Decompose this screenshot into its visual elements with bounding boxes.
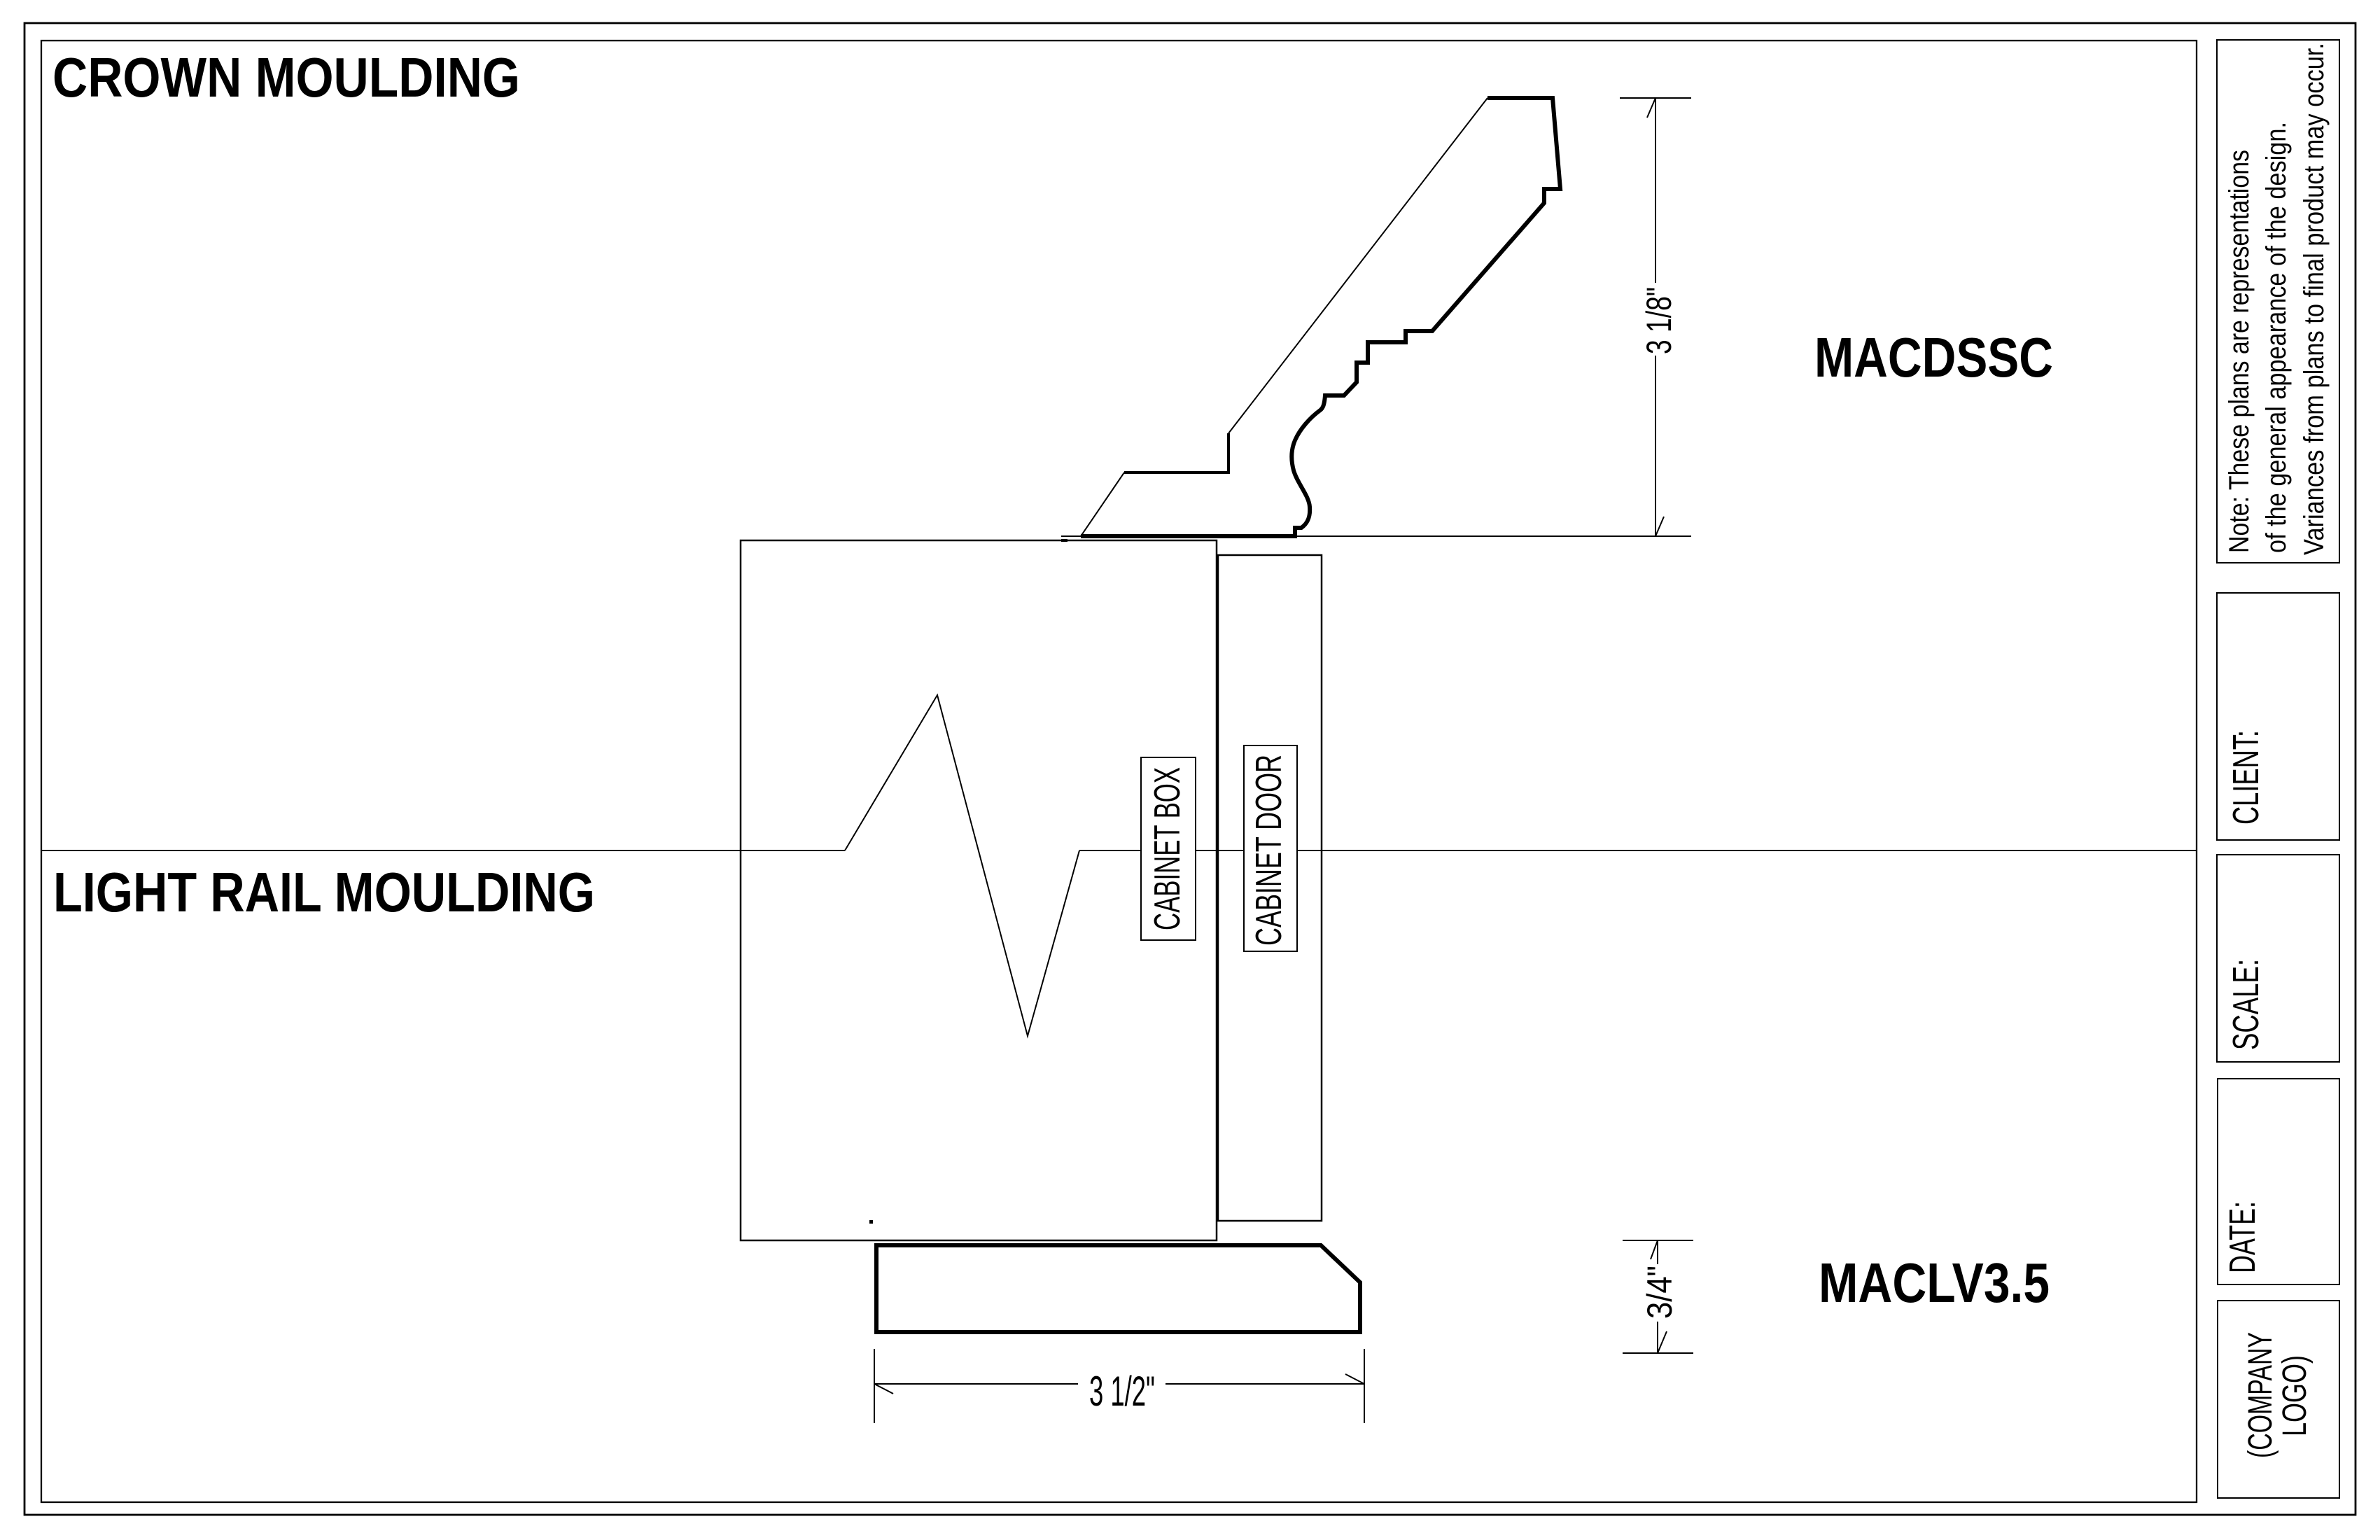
- svg-text:DATE:: DATE:: [2222, 1201, 2263, 1273]
- svg-text:3 1/8": 3 1/8": [1639, 287, 1679, 354]
- svg-text:CLIENT:: CLIENT:: [2226, 730, 2267, 825]
- svg-text:of the general appearance of t: of the general appearance of the design.: [2261, 122, 2292, 553]
- svg-text:CABINET BOX: CABINET BOX: [1147, 767, 1188, 930]
- svg-text:Variances from plans to final: Variances from plans to final product ma…: [2299, 43, 2330, 555]
- svg-text:LIGHT RAIL MOULDING: LIGHT RAIL MOULDING: [53, 861, 595, 923]
- svg-text:Note: These plans are represen: Note: These plans are representations: [2224, 150, 2255, 553]
- svg-text:(COMPANY: (COMPANY: [2242, 1332, 2279, 1458]
- svg-text:LOGO): LOGO): [2276, 1355, 2313, 1436]
- svg-text:CROWN MOULDING: CROWN MOULDING: [52, 46, 520, 108]
- svg-text:3/4": 3/4": [1640, 1266, 1679, 1319]
- svg-text:MACDSSC: MACDSSC: [1814, 326, 2053, 388]
- svg-text:CABINET DOOR: CABINET DOOR: [1249, 755, 1289, 946]
- svg-text:MACLV3.5: MACLV3.5: [1819, 1252, 2050, 1314]
- svg-text:3 1/2": 3 1/2": [1089, 1368, 1155, 1415]
- svg-text:SCALE:: SCALE:: [2226, 959, 2267, 1050]
